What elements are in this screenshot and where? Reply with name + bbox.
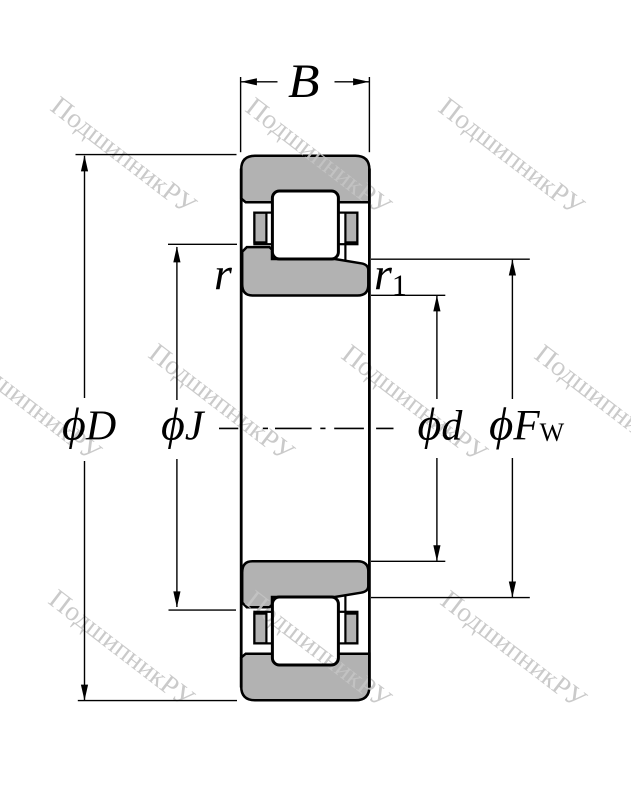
svg-text:ϕJ: ϕJ xyxy=(161,399,206,450)
svg-text:B: B xyxy=(288,55,320,108)
svg-text:r: r xyxy=(214,248,233,299)
svg-text:ϕd: ϕd xyxy=(418,399,464,450)
svg-text:ϕD: ϕD xyxy=(62,399,116,450)
